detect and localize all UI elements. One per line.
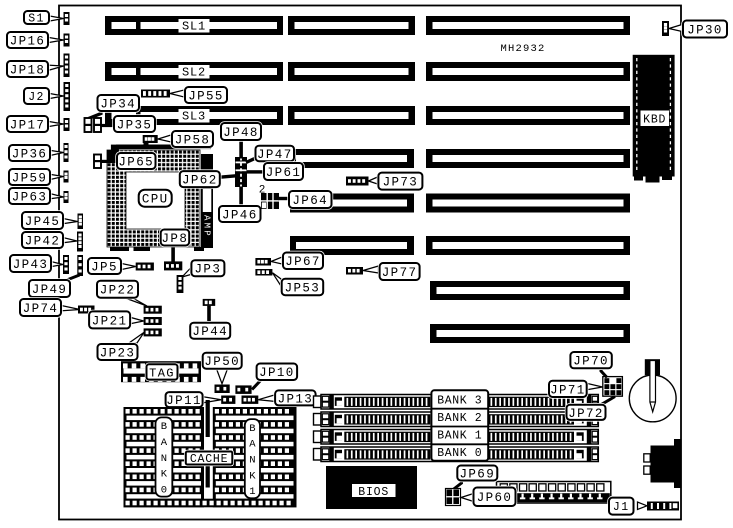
svg-text:JP21: JP21 — [92, 314, 128, 328]
svg-text:SL3: SL3 — [182, 110, 206, 124]
svg-text:K: K — [161, 469, 168, 481]
svg-text:CPU: CPU — [142, 193, 169, 207]
svg-text:JP22: JP22 — [100, 284, 136, 298]
svg-text:JP72: JP72 — [568, 407, 604, 421]
svg-text:JP42: JP42 — [25, 235, 61, 249]
svg-text:N: N — [161, 453, 167, 465]
svg-text:BANK 3: BANK 3 — [437, 394, 482, 407]
svg-text:JP53: JP53 — [285, 281, 321, 295]
svg-text:JP8: JP8 — [162, 232, 189, 246]
svg-text:JP59: JP59 — [12, 172, 48, 186]
svg-text:JP45: JP45 — [25, 215, 61, 229]
svg-text:N: N — [249, 455, 255, 467]
svg-text:JP62: JP62 — [182, 174, 218, 188]
svg-text:JP5: JP5 — [91, 261, 118, 275]
svg-text:JP70: JP70 — [573, 355, 609, 369]
svg-text:S1: S1 — [28, 13, 45, 26]
svg-text:B: B — [249, 423, 255, 435]
svg-text:K: K — [249, 470, 256, 482]
svg-text:JP10: JP10 — [259, 366, 295, 380]
svg-text:BANK 0: BANK 0 — [437, 447, 482, 460]
svg-text:JP77: JP77 — [382, 266, 418, 280]
svg-text:JP63: JP63 — [12, 191, 48, 205]
svg-text:JP49: JP49 — [32, 283, 68, 297]
svg-text:AMP: AMP — [201, 215, 211, 238]
svg-text:SL2: SL2 — [182, 66, 206, 80]
svg-text:JP71: JP71 — [550, 383, 586, 397]
svg-text:JP3: JP3 — [195, 263, 222, 277]
svg-text:JP11: JP11 — [166, 394, 202, 408]
svg-text:KBD: KBD — [643, 114, 666, 127]
svg-text:J2: J2 — [28, 91, 45, 104]
svg-text:JP34: JP34 — [100, 98, 136, 112]
svg-text:JP23: JP23 — [100, 347, 136, 361]
svg-text:JP35: JP35 — [117, 119, 153, 133]
svg-text:JP60: JP60 — [477, 491, 513, 505]
svg-text:A: A — [161, 437, 168, 449]
svg-text:JP48: JP48 — [223, 126, 259, 140]
svg-text:JP55: JP55 — [188, 90, 224, 104]
svg-text:JP58: JP58 — [175, 134, 211, 148]
svg-text:JP64: JP64 — [292, 194, 328, 208]
svg-text:0: 0 — [161, 485, 167, 497]
svg-text:JP13: JP13 — [278, 392, 314, 406]
svg-text:CACHE: CACHE — [190, 453, 229, 466]
svg-text:BANK 1: BANK 1 — [437, 430, 482, 443]
svg-text:JP69: JP69 — [459, 468, 495, 482]
svg-text:JP65: JP65 — [118, 156, 154, 170]
svg-text:JP43: JP43 — [13, 258, 49, 272]
svg-text:JP74: JP74 — [23, 302, 59, 316]
svg-text:JP18: JP18 — [10, 64, 46, 78]
svg-text:JP44: JP44 — [192, 325, 228, 339]
svg-text:SL1: SL1 — [182, 20, 206, 34]
svg-text:J1: J1 — [613, 501, 630, 514]
svg-text:1: 1 — [249, 486, 255, 498]
svg-text:JP30: JP30 — [687, 24, 723, 38]
svg-text:JP61: JP61 — [266, 166, 302, 180]
svg-text:MH2932: MH2932 — [500, 43, 545, 55]
svg-text:JP47: JP47 — [257, 148, 293, 162]
svg-text:JP36: JP36 — [12, 148, 48, 162]
svg-text:JP73: JP73 — [383, 176, 419, 190]
svg-text:JP67: JP67 — [285, 255, 321, 269]
svg-text:BANK 2: BANK 2 — [437, 412, 482, 425]
svg-text:A: A — [249, 439, 256, 451]
svg-text:JP16: JP16 — [10, 35, 46, 49]
svg-text:JP17: JP17 — [10, 119, 46, 133]
svg-text:JP50: JP50 — [204, 355, 240, 369]
svg-text:TAG: TAG — [149, 366, 175, 380]
svg-text:JP46: JP46 — [222, 209, 258, 223]
svg-text:B: B — [161, 421, 167, 433]
svg-text:BIOS: BIOS — [358, 486, 389, 499]
